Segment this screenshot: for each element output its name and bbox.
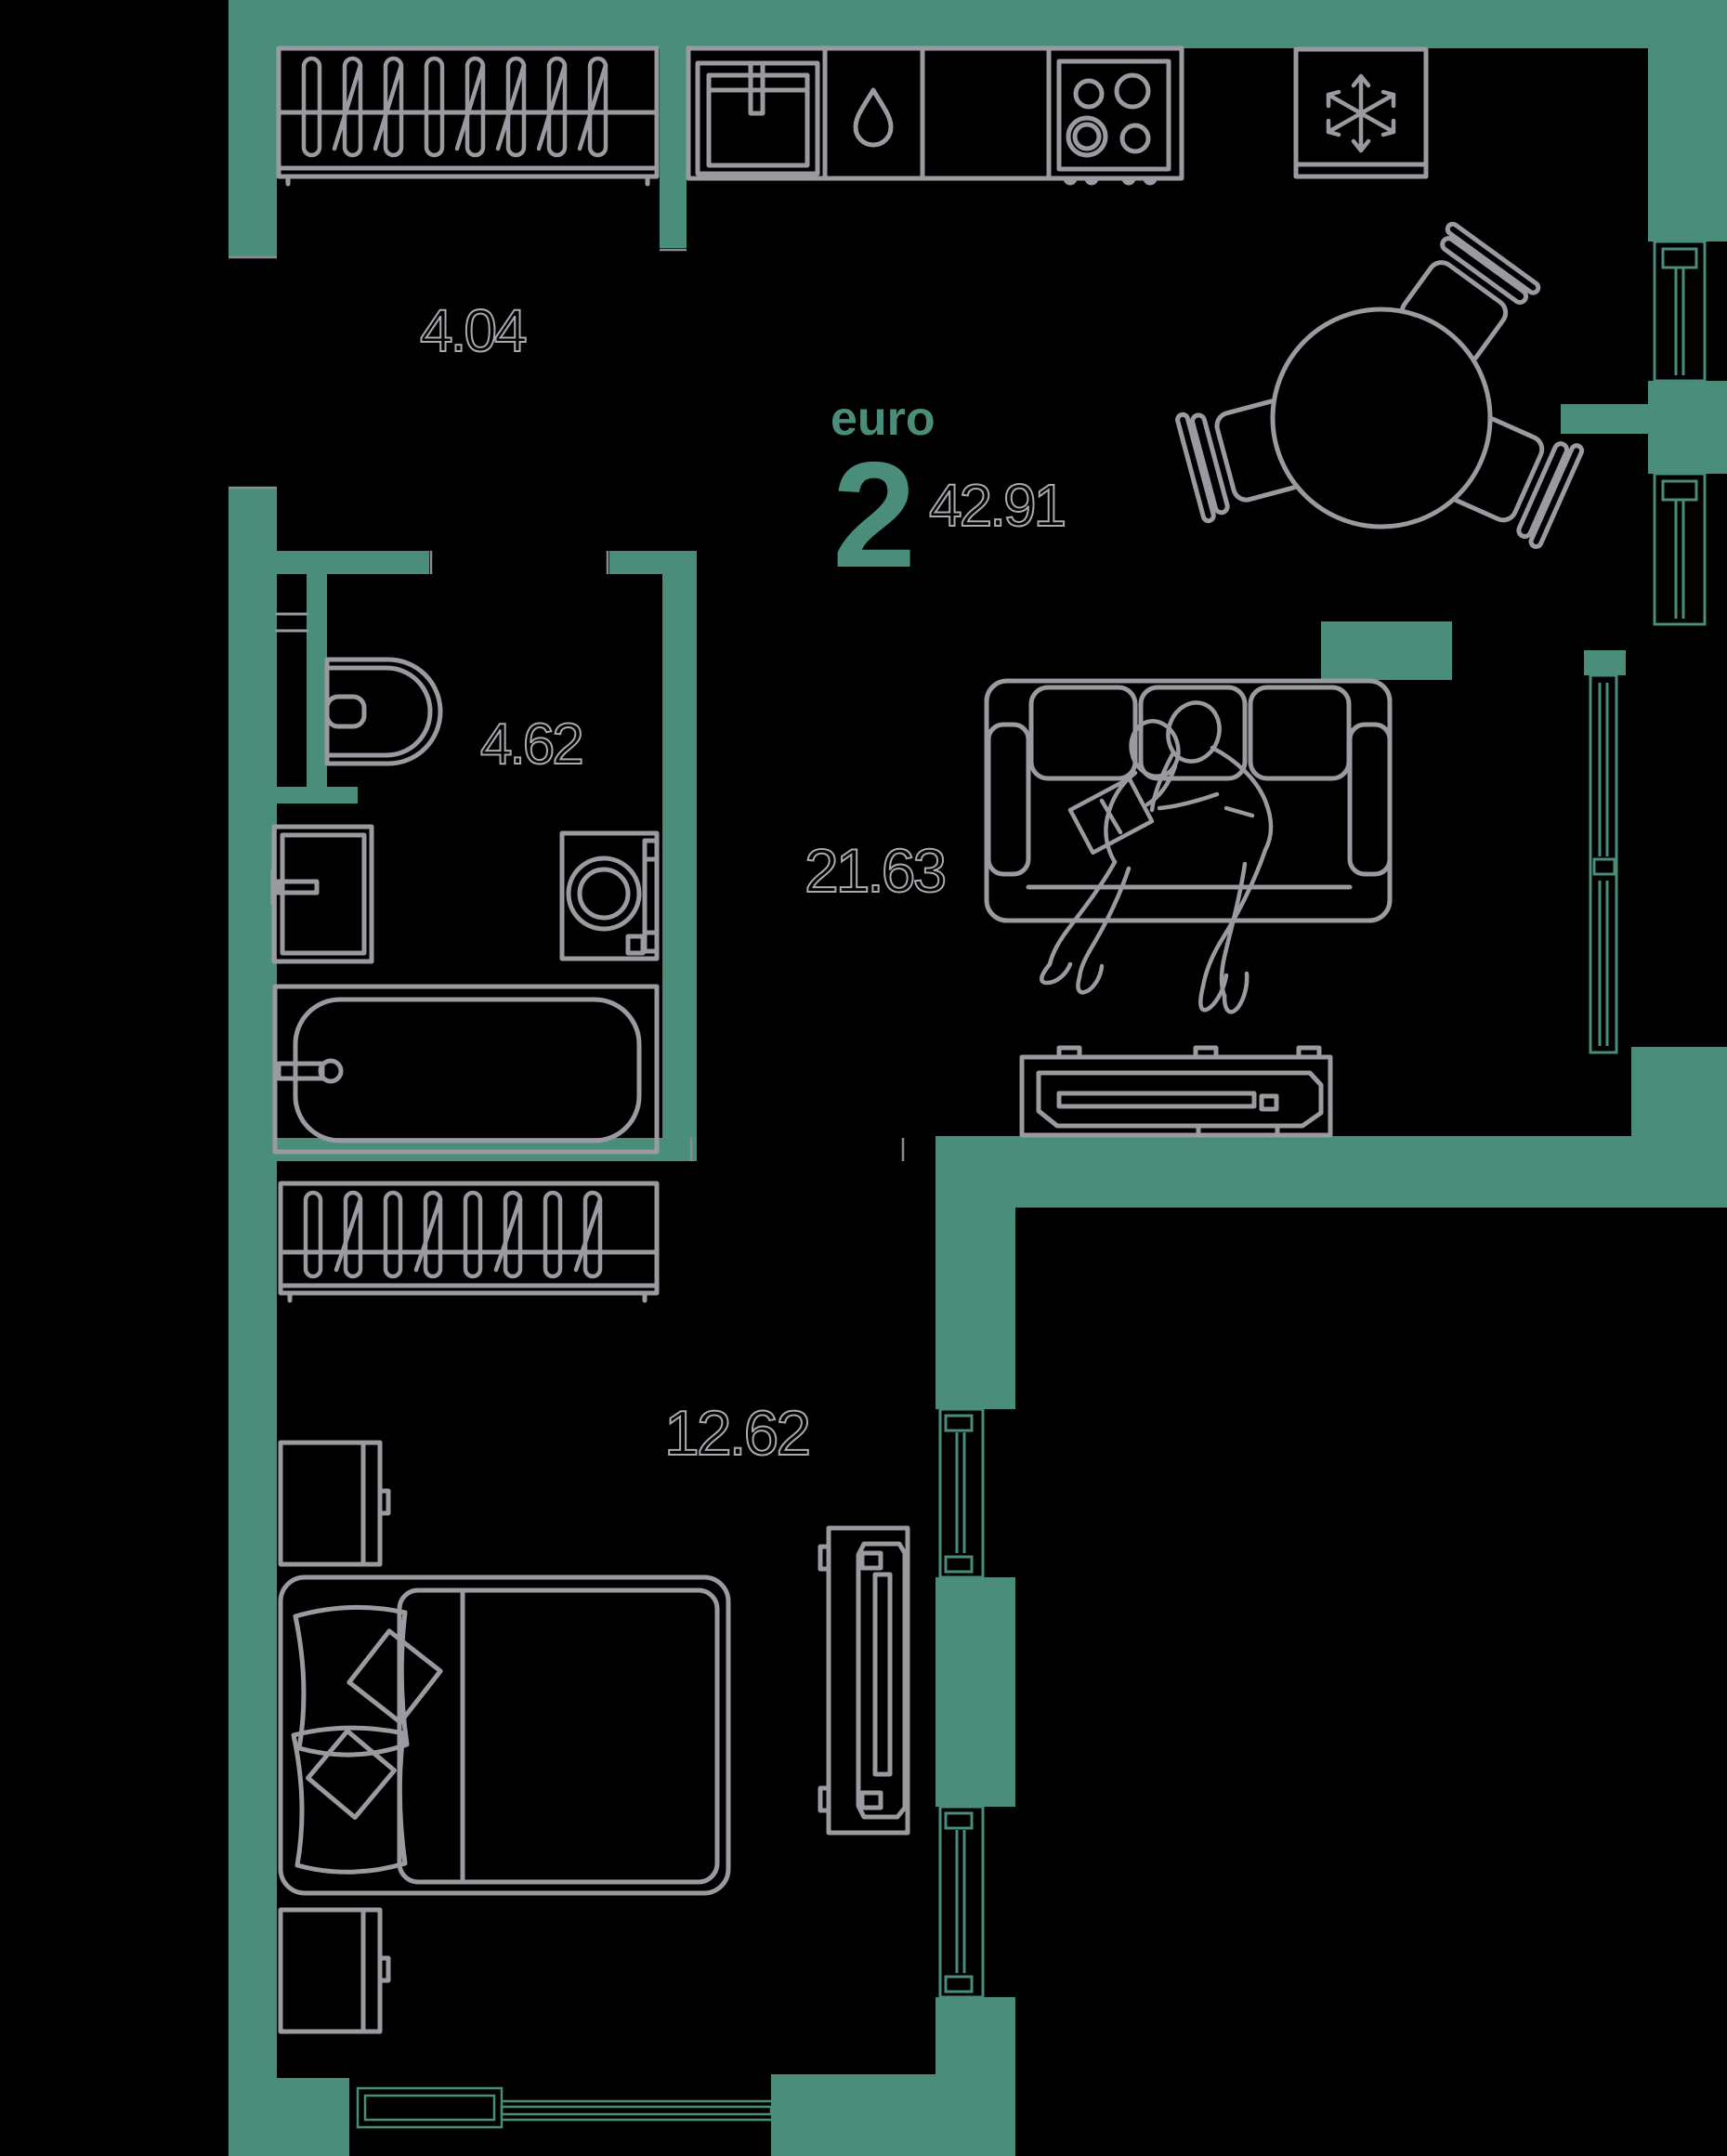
window-bottom	[358, 2088, 771, 2127]
bathroom-sink-icon	[273, 827, 372, 961]
window-handle-icon	[1663, 481, 1696, 500]
wall-right-mid	[1648, 381, 1727, 474]
kitchen-counter	[688, 48, 1182, 183]
wall-right-pier	[1561, 404, 1648, 434]
sink-icon	[698, 63, 818, 174]
wall-top	[229, 0, 1727, 48]
window-handle-icon	[1594, 859, 1615, 874]
wall-bath-right	[662, 551, 697, 1161]
room-area-bedroom: 12.62	[664, 1398, 808, 1469]
sofa-icon	[987, 681, 1390, 921]
wall-bedroom-col-2	[935, 1577, 1015, 1807]
round-table-icon	[1273, 309, 1490, 527]
door-jambs	[229, 250, 903, 1161]
bathroom-duct	[277, 614, 307, 631]
plan-type-number: 2	[832, 431, 916, 599]
wardrobe-hangers-icon	[306, 1193, 600, 1276]
pillow	[349, 1631, 440, 1722]
nightstand	[281, 1910, 388, 2032]
floor-plan: 4.04 4.62 21.63 12.62 euro 2 42.91	[0, 0, 1727, 2156]
wall-left-lower	[229, 488, 277, 2078]
window-handle-icon	[946, 1416, 972, 1431]
window-bedroom-1	[940, 1409, 983, 1577]
dining-set	[1176, 222, 1583, 548]
washing-machine-icon	[562, 833, 657, 959]
water-drop-icon	[856, 90, 891, 145]
window-handle-icon	[1663, 249, 1696, 268]
stove-burners-icon	[1059, 61, 1169, 183]
snowflake-icon	[1328, 76, 1393, 150]
hallway-wardrobe	[279, 48, 657, 184]
plan-total-area: 42.91	[929, 472, 1065, 539]
wardrobe-hangers-icon	[304, 59, 606, 155]
wall-bath-top-left	[277, 551, 429, 574]
room-area-living: 21.63	[805, 836, 944, 905]
people-reading-icon	[1041, 696, 1271, 1012]
window-handle-icon	[946, 1557, 972, 1572]
pillow	[308, 1731, 395, 1818]
wall-corner-bottom-left	[229, 2078, 349, 2156]
bathtub-icon	[275, 987, 657, 1152]
room-area-hallway: 4.04	[420, 297, 526, 364]
window-right-1	[1655, 242, 1705, 381]
wall-living-bottom	[935, 1136, 1727, 1208]
wall-bath-duct-cap	[277, 787, 358, 804]
toilet-icon	[327, 660, 440, 764]
bedroom-tv-console	[820, 1528, 908, 1833]
wall-bottom-solid	[771, 2074, 1015, 2156]
floor-plan-svg: 4.04 4.62 21.63 12.62 euro 2 42.91	[0, 0, 1727, 2156]
nightstand	[281, 1443, 388, 1564]
wall-bath-top-right	[609, 551, 662, 574]
wall-living-stub	[1321, 621, 1452, 680]
window-handle-icon	[946, 1977, 972, 1992]
wall-right-top	[1648, 0, 1727, 242]
window-glass-wall	[1590, 675, 1616, 1052]
window-right-2	[1655, 474, 1705, 624]
bedroom-wardrobe	[281, 1183, 657, 1300]
wall-hall-divider	[660, 0, 687, 248]
double-bed-icon	[281, 1577, 728, 1893]
window-bedroom-2	[940, 1807, 983, 1997]
wall-left-upper	[229, 0, 277, 257]
fridge	[1296, 49, 1426, 176]
wall-glass-cap	[1584, 650, 1626, 675]
room-area-bathroom: 4.62	[480, 712, 582, 777]
window-handle-icon	[946, 1813, 972, 1828]
tv-stand-icon	[1022, 1048, 1330, 1135]
wall-bath-duct-rib	[307, 574, 327, 787]
wall-bedroom-col-1	[935, 1208, 1015, 1409]
